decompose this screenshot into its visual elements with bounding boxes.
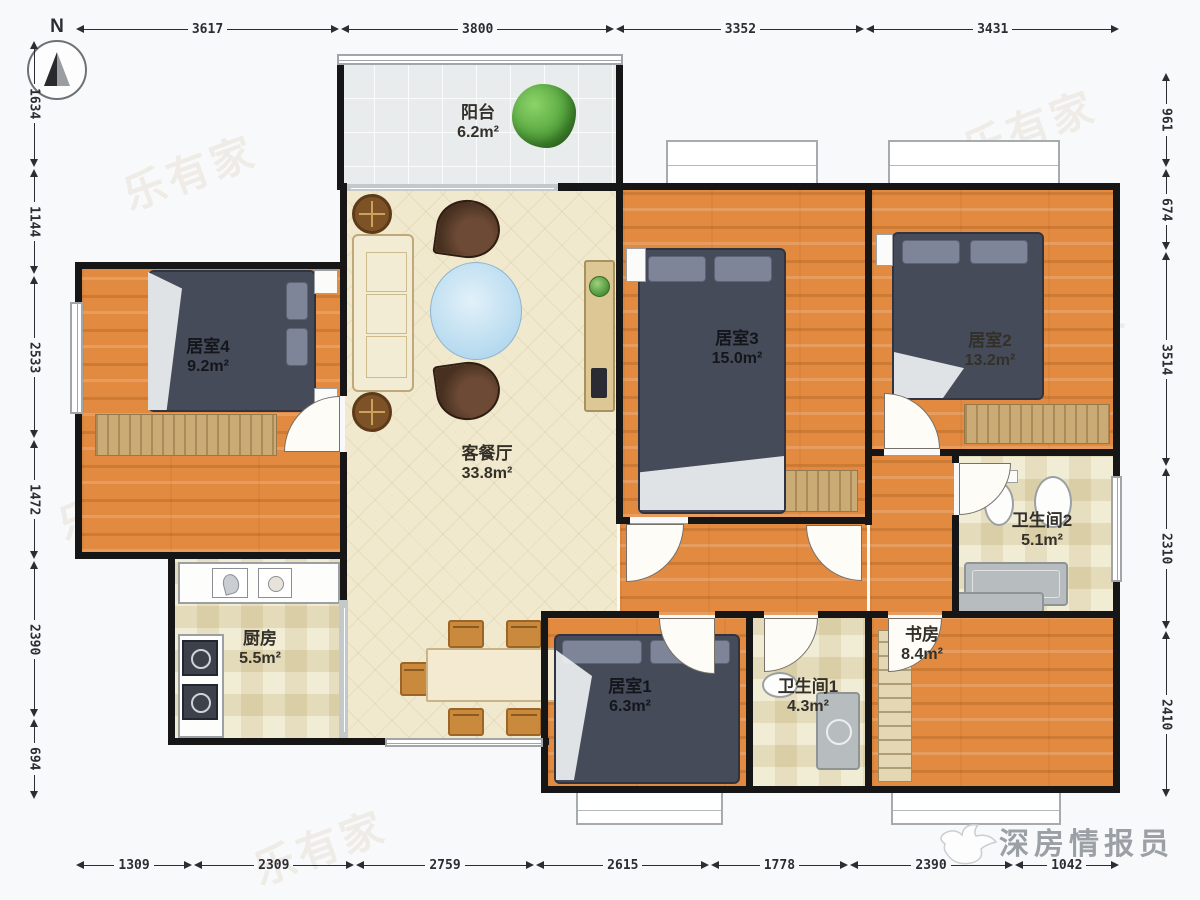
nightstand (876, 234, 893, 266)
side-table (352, 194, 392, 234)
watermark-text: 乐有家 (114, 118, 265, 223)
dove-icon (935, 816, 999, 866)
wardrobe (964, 404, 1110, 444)
dim-label: 1778 (760, 858, 799, 873)
dim-label: 2310 (1159, 529, 1174, 568)
dim-left-2: 1144 (24, 169, 44, 275)
room-label-bedroom3: 居室3 15.0m² (677, 328, 797, 369)
room-label-bedroom1: 居室1 6.3m² (570, 676, 690, 717)
room-label-study: 书房 8.4m² (862, 624, 982, 665)
wall (75, 552, 347, 559)
window-bedroom4 (70, 302, 83, 414)
wall (340, 183, 347, 269)
pillow (902, 240, 960, 264)
wall (75, 262, 347, 269)
dim-label: 2533 (27, 338, 42, 377)
dim-label: 694 (27, 743, 42, 774)
brand-watermark: 深房情报员 (935, 816, 1174, 866)
wall (340, 552, 347, 600)
bay-window-bedroom3 (666, 140, 818, 186)
room-name: 居室4 (148, 336, 268, 357)
dim-label: 2759 (425, 858, 464, 873)
dim-label: 3431 (973, 22, 1012, 37)
room-name: 客餐厅 (427, 443, 547, 464)
room-label-balcony: 阳台 6.2m² (418, 102, 538, 143)
dim-left-5: 2390 (24, 561, 44, 717)
dim-label: 1144 (27, 202, 42, 241)
brand-name: 深房情报员 (999, 819, 1174, 863)
room-label-bath1: 卫生间1 4.3m² (748, 676, 868, 717)
wall (541, 611, 548, 793)
dim-label: 674 (1159, 194, 1174, 225)
dim-top-3: 3352 (616, 20, 864, 38)
dim-bottom-5: 1778 (711, 856, 847, 874)
dim-right-2: 674 (1156, 169, 1176, 250)
dim-bottom-3: 2759 (356, 856, 535, 874)
dim-right-3: 3514 (1156, 252, 1176, 466)
sink-icon (212, 568, 248, 598)
wall (340, 452, 347, 559)
room-area: 8.4m² (862, 645, 982, 665)
bay-window-bedroom2 (888, 140, 1060, 186)
dining-chair (400, 662, 428, 696)
wall (865, 449, 872, 525)
side-table (352, 392, 392, 432)
sliding-door-kitchen (339, 600, 348, 740)
dim-left-3: 2533 (24, 276, 44, 438)
dimension-col-right: 961 674 3514 2310 2410 (1156, 72, 1176, 798)
nightstand (314, 270, 338, 294)
wall (940, 449, 1120, 456)
room-name: 居室1 (570, 676, 690, 697)
watermark-text: 乐有家 (244, 793, 395, 898)
coffee-table (430, 262, 522, 360)
dining-chair (448, 708, 484, 736)
dim-label: 3800 (458, 22, 497, 37)
room-label-bath2: 卫生间2 5.1m² (982, 510, 1102, 551)
wall (340, 262, 347, 396)
room-area: 5.1m² (982, 531, 1102, 551)
pillow (286, 328, 308, 366)
wall (541, 611, 659, 618)
dim-bottom-1: 1309 (76, 856, 192, 874)
room-area: 6.3m² (570, 697, 690, 717)
dimension-row-top: 3617 3800 3352 3431 (75, 20, 1120, 38)
bay-window-bedroom1 (576, 791, 723, 825)
room-label-kitchen: 厨房 5.5m² (200, 628, 320, 669)
dim-bottom-2: 2309 (194, 856, 353, 874)
nightstand (626, 248, 646, 282)
dimension-col-left: 1634 1144 2533 1472 2390 694 (24, 40, 44, 800)
wardrobe (95, 414, 277, 456)
pillow (970, 240, 1028, 264)
dim-label: 2615 (603, 858, 642, 873)
room-label-living: 客餐厅 33.8m² (427, 443, 547, 484)
tv (591, 368, 607, 398)
dim-label: 1309 (114, 858, 153, 873)
floorplan-canvas: 乐有家 乐有家 乐有家 乐有家 乐有家 N 3617 3800 3352 343… (0, 0, 1200, 900)
room-area: 5.5m² (200, 649, 320, 669)
wall (688, 517, 872, 524)
dim-label: 1634 (27, 84, 42, 123)
stove-icon (258, 568, 292, 598)
dim-top-1: 3617 (76, 20, 339, 38)
room-name: 居室2 (930, 330, 1050, 351)
wall (168, 552, 175, 745)
pillow (648, 256, 706, 282)
room-name: 卫生间2 (982, 510, 1102, 531)
dim-label: 2410 (1159, 695, 1174, 734)
wall (715, 611, 764, 618)
wall (541, 786, 1120, 793)
window-balcony (337, 54, 623, 65)
window-bath2 (1111, 476, 1122, 582)
wall (942, 611, 1120, 618)
wall (952, 449, 959, 463)
wall (616, 62, 623, 190)
room-area: 4.3m² (748, 697, 868, 717)
wall (616, 183, 623, 524)
room-area: 9.2m² (148, 357, 268, 377)
wall (818, 611, 872, 618)
dim-top-2: 3800 (341, 20, 614, 38)
room-area: 15.0m² (677, 349, 797, 369)
dim-left-1: 1634 (24, 41, 44, 167)
room-name: 书房 (862, 624, 982, 645)
room-name: 卫生间1 (748, 676, 868, 697)
window-dining (385, 738, 543, 747)
room-label-bedroom4: 居室4 9.2m² (148, 336, 268, 377)
pillow (562, 640, 642, 664)
dim-right-5: 2410 (1156, 631, 1176, 797)
dim-right-1: 961 (1156, 73, 1176, 167)
room-name: 阳台 (418, 102, 538, 123)
dim-top-4: 3431 (866, 20, 1119, 38)
room-area: 6.2m² (418, 123, 538, 143)
room-name: 居室3 (677, 328, 797, 349)
dim-left-4: 1472 (24, 440, 44, 559)
dim-label: 3514 (1159, 340, 1174, 379)
pillow (286, 282, 308, 320)
dim-label: 1472 (27, 480, 42, 519)
sofa (352, 234, 414, 392)
room-area: 33.8m² (427, 464, 547, 484)
wall (337, 62, 344, 190)
sliding-door-balcony (347, 184, 558, 191)
hallway-2 (870, 455, 954, 615)
wall (558, 183, 623, 191)
wall (168, 738, 347, 745)
dim-label: 961 (1159, 104, 1174, 135)
room-area: 13.2m² (930, 351, 1050, 371)
dining-chair (506, 708, 542, 736)
dim-bottom-4: 2615 (536, 856, 709, 874)
dim-left-6: 694 (24, 719, 44, 799)
plant-icon (589, 276, 610, 297)
appliance (182, 684, 218, 720)
dim-right-4: 2310 (1156, 468, 1176, 629)
room-label-bedroom2: 居室2 13.2m² (930, 330, 1050, 371)
wall (952, 515, 959, 615)
pillow (714, 256, 772, 282)
dim-label: 3352 (721, 22, 760, 37)
dim-label: 2390 (27, 620, 42, 659)
wall (865, 183, 872, 456)
room-name: 厨房 (200, 628, 320, 649)
dim-label: 2309 (254, 858, 293, 873)
dim-label: 3617 (188, 22, 227, 37)
dining-chair (448, 620, 484, 648)
dining-chair (506, 620, 542, 648)
